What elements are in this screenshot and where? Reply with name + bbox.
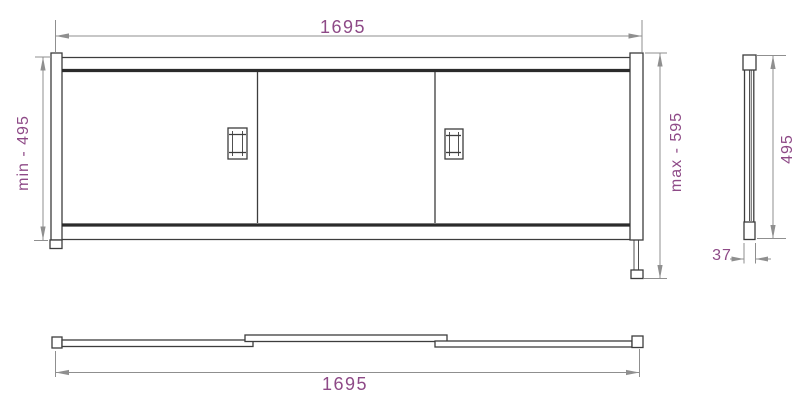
dim-label-max-height: max - 595: [668, 112, 685, 192]
plan-view: [52, 335, 643, 348]
plan-right-cap: [632, 336, 643, 348]
handle-2-frame: [445, 129, 463, 159]
dim-arrow-down: [40, 227, 45, 241]
dim-arrow-down: [770, 225, 775, 239]
dimension-min-height: min - 495: [15, 57, 51, 241]
dim-arrow-up: [657, 53, 662, 67]
dim-label-side-height: 495: [779, 134, 796, 164]
dim-arrow-left: [56, 33, 70, 38]
plan-middle-panel: [245, 335, 447, 342]
dim-arrow-up: [770, 56, 775, 70]
dim-arrow-up: [40, 57, 45, 71]
side-view: [743, 55, 756, 240]
dimension-max-height: max - 595: [644, 53, 685, 279]
front-right-foot: [631, 270, 643, 279]
side-top-cap: [743, 55, 756, 70]
dim-arrow-left: [756, 257, 769, 262]
dimension-plan-width: 1695: [56, 349, 640, 394]
front-right-post: [630, 53, 643, 240]
dim-label-min-height: min - 495: [15, 115, 32, 191]
dim-label-side-depth: 37: [712, 247, 732, 264]
front-view: [50, 53, 643, 279]
plan-right-panel: [435, 341, 632, 347]
handle-1-frame: [228, 128, 247, 159]
dim-arrow-down: [657, 265, 662, 279]
handle-1: [228, 128, 247, 159]
front-left-post: [51, 53, 62, 240]
dim-arrow-left: [56, 370, 70, 375]
dim-arrow-right: [629, 33, 643, 38]
dimension-side-height: 495: [757, 56, 796, 239]
drawing-svg: 1695 min - 495 max - 595 495: [0, 0, 800, 406]
plan-left-panel: [62, 340, 253, 347]
front-left-foot: [50, 240, 62, 249]
handle-2: [445, 129, 463, 159]
side-bottom-cap: [744, 222, 755, 240]
dim-label-front-width: 1695: [320, 17, 366, 37]
technical-drawing-bath-panel: 1695 min - 495 max - 595 495: [0, 0, 800, 406]
plan-left-cap: [52, 337, 62, 348]
dimension-side-depth: 37: [712, 243, 771, 264]
dim-label-plan-width: 1695: [322, 374, 368, 394]
dim-arrow-right: [626, 370, 640, 375]
dimension-front-width: 1695: [56, 17, 643, 52]
dim-arrow-right: [732, 257, 745, 262]
